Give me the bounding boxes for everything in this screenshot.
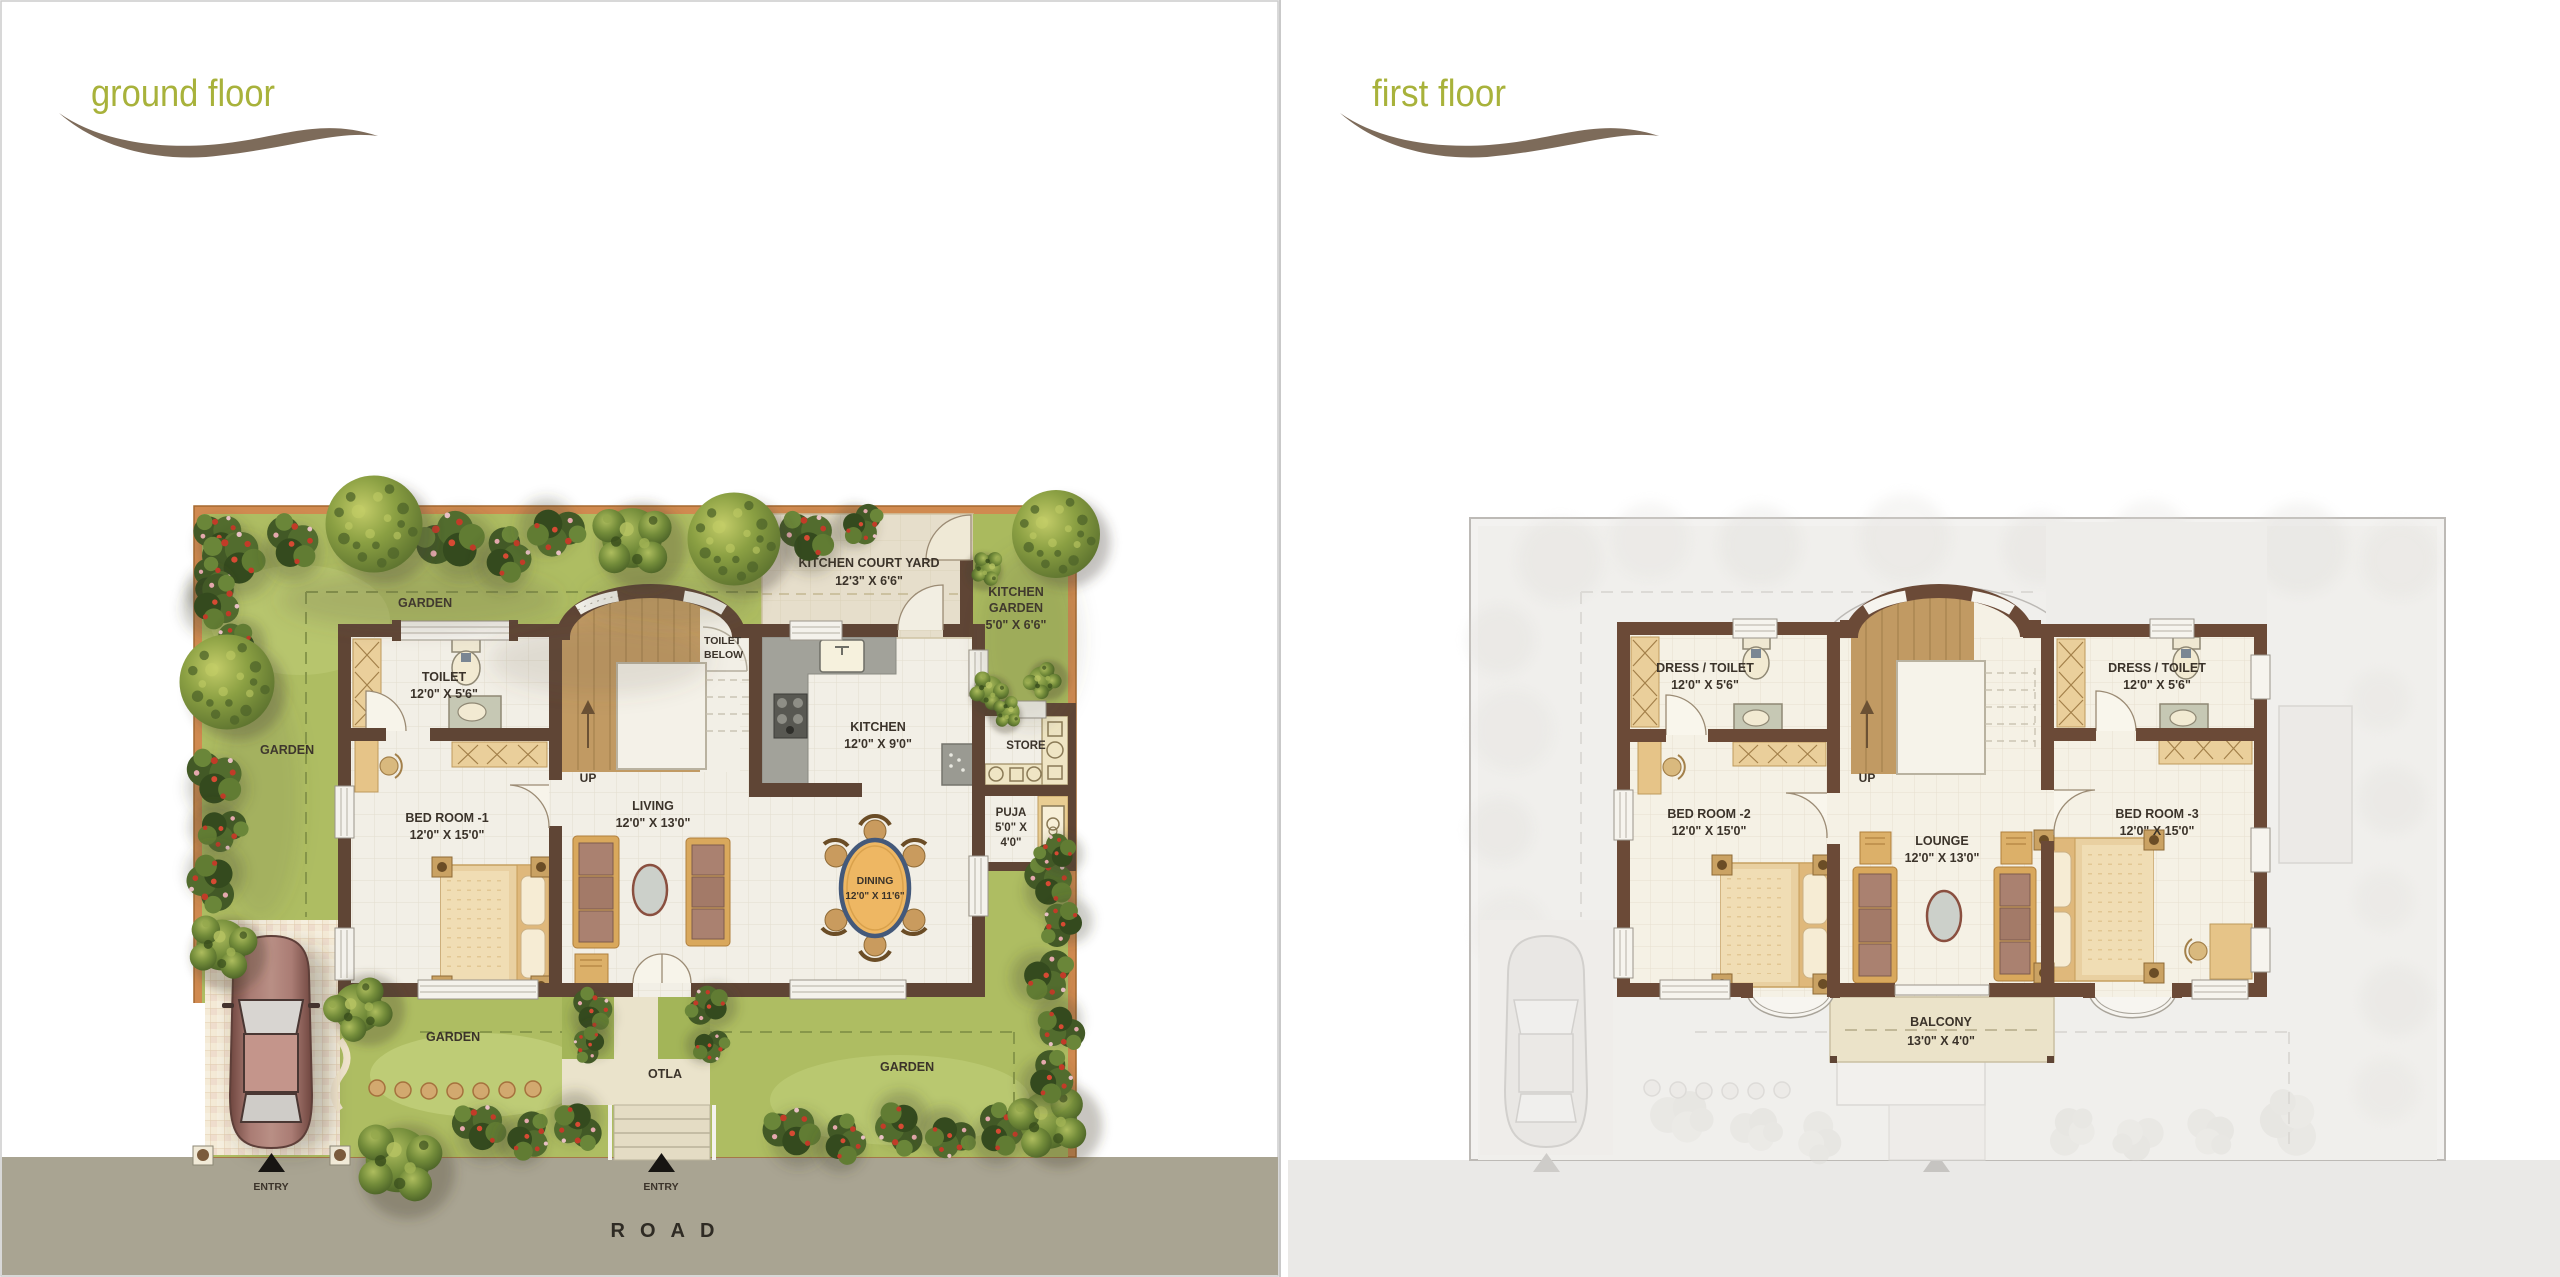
svg-text:13'0" X 4'0": 13'0" X 4'0" (1907, 1034, 1975, 1048)
svg-text:PUJA: PUJA (996, 807, 1027, 819)
svg-text:12'0" X 15'0": 12'0" X 15'0" (410, 828, 485, 842)
svg-text:ENTRY: ENTRY (643, 1181, 678, 1193)
svg-text:TOILET: TOILET (704, 635, 742, 647)
svg-text:12'0" X 15'0": 12'0" X 15'0" (1672, 824, 1747, 838)
svg-text:GARDEN: GARDEN (426, 1030, 480, 1044)
svg-text:STORE: STORE (1006, 740, 1046, 752)
svg-text:TOILET: TOILET (422, 670, 467, 684)
svg-text:LIVING: LIVING (632, 799, 674, 813)
svg-text:DINING: DINING (857, 875, 894, 887)
svg-text:OTLA: OTLA (648, 1067, 682, 1081)
svg-text:12'0" X 5'6": 12'0" X 5'6" (410, 687, 478, 701)
svg-text:12'0" X 9'0": 12'0" X 9'0" (844, 737, 912, 751)
svg-text:12'0" X 15'0": 12'0" X 15'0" (2120, 824, 2195, 838)
svg-text:KITCHEN: KITCHEN (850, 720, 906, 734)
svg-text:12'0" X 13'0": 12'0" X 13'0" (1905, 851, 1980, 865)
svg-text:ENTRY: ENTRY (253, 1181, 288, 1193)
svg-text:ROAD: ROAD (611, 1220, 730, 1242)
svg-text:BED ROOM -3: BED ROOM -3 (2115, 807, 2198, 821)
svg-text:BALCONY: BALCONY (1910, 1015, 1972, 1029)
svg-text:12'0" X 5'6": 12'0" X 5'6" (2123, 678, 2191, 692)
svg-text:ground floor: ground floor (91, 73, 275, 115)
svg-text:DRESS / TOILET: DRESS / TOILET (1656, 661, 1754, 675)
svg-text:12'0" X 11'6": 12'0" X 11'6" (845, 891, 905, 902)
svg-text:4'0": 4'0" (1001, 837, 1022, 849)
svg-text:12'3" X 6'6": 12'3" X 6'6" (835, 574, 903, 588)
svg-text:first floor: first floor (1372, 73, 1506, 115)
svg-text:GARDEN: GARDEN (880, 1060, 934, 1074)
svg-text:UP: UP (1859, 771, 1876, 785)
svg-text:12'0" X 13'0": 12'0" X 13'0" (616, 816, 691, 830)
svg-text:12'0" X 5'6": 12'0" X 5'6" (1671, 678, 1739, 692)
svg-text:UP: UP (580, 771, 597, 785)
svg-text:LOUNGE: LOUNGE (1915, 834, 1968, 848)
svg-text:5'0" X: 5'0" X (995, 822, 1027, 834)
svg-text:BED ROOM -1: BED ROOM -1 (405, 811, 488, 825)
svg-text:DRESS / TOILET: DRESS / TOILET (2108, 661, 2206, 675)
svg-text:BED ROOM -2: BED ROOM -2 (1667, 807, 1750, 821)
